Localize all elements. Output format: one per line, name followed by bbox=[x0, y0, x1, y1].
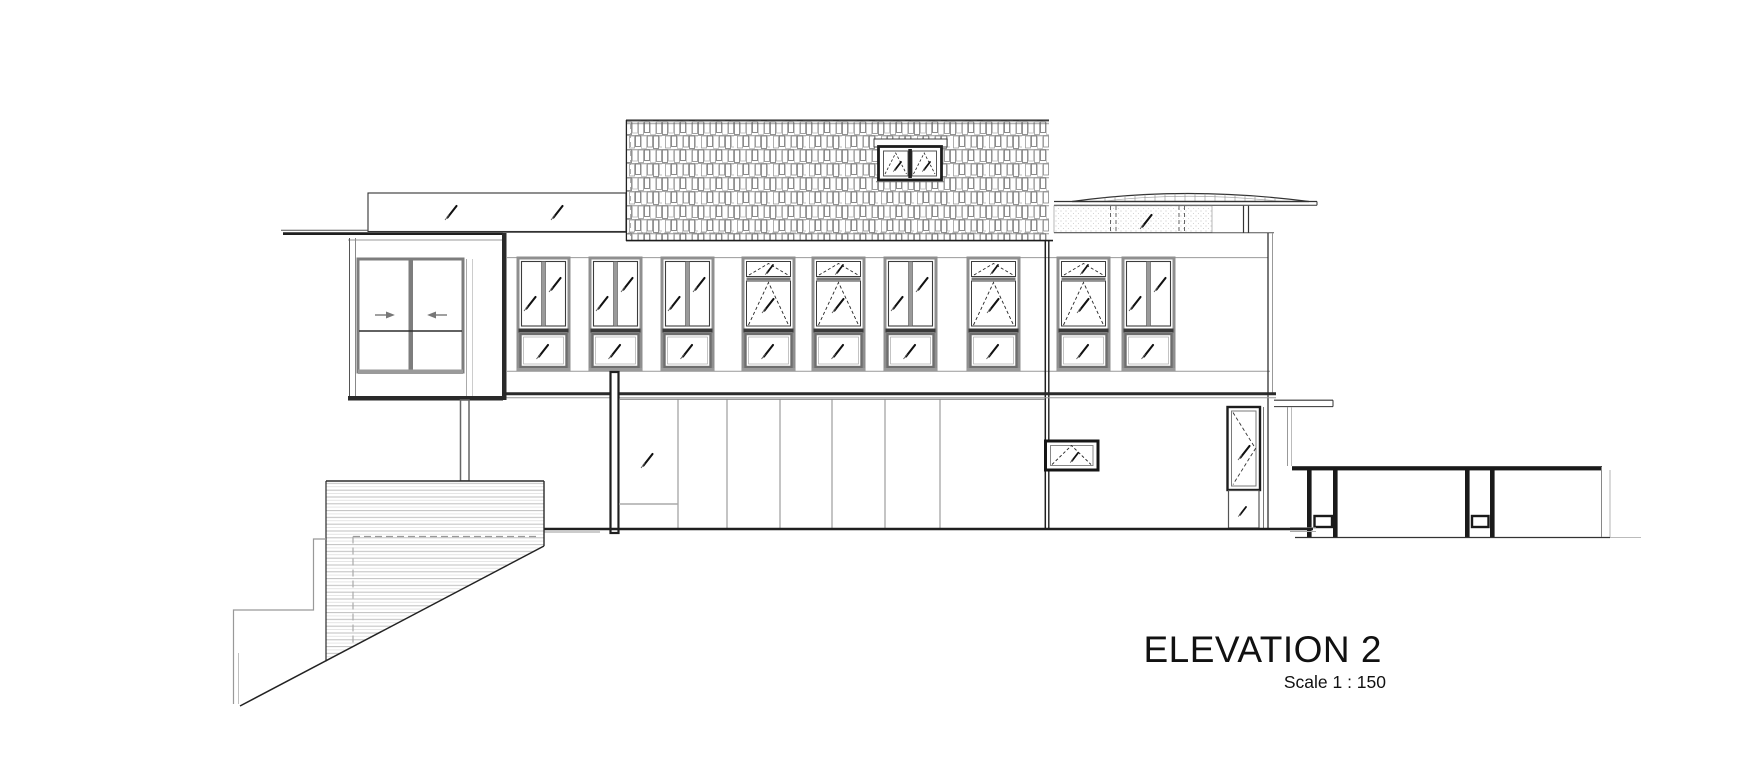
gate-latch-icon bbox=[1315, 516, 1333, 527]
drawing-title: ELEVATION 2 bbox=[1143, 629, 1382, 670]
roof-deck-band bbox=[1054, 206, 1274, 233]
upper-window-2-casement bbox=[589, 258, 642, 371]
ground-line bbox=[544, 529, 1313, 532]
upper-window-5-awning bbox=[812, 258, 865, 371]
gate-latch-icon bbox=[1472, 516, 1489, 527]
upper-window-row bbox=[517, 258, 1175, 371]
dormer-window bbox=[874, 139, 947, 182]
entry-door-porch bbox=[1228, 400, 1334, 528]
shingle-clad-volume bbox=[626, 120, 1053, 241]
title-block: ELEVATION 2 Scale 1 : 150 bbox=[1143, 629, 1386, 692]
upper-window-7-awning bbox=[967, 258, 1020, 371]
drawing-sheet: ELEVATION 2 Scale 1 : 150 bbox=[0, 0, 1754, 784]
fence-gate bbox=[1290, 466, 1641, 537]
upper-window-9-casement bbox=[1122, 258, 1175, 371]
small-awning-window bbox=[1046, 441, 1099, 470]
upper-window-4-awning bbox=[742, 258, 795, 371]
eyebrow-roof bbox=[1054, 186, 1317, 205]
upper-window-3-casement bbox=[661, 258, 714, 371]
retaining-wall-stairs bbox=[234, 481, 545, 706]
lower-wall-panels bbox=[611, 372, 1046, 533]
upper-window-1-casement bbox=[517, 258, 570, 371]
upper-window-6-casement bbox=[884, 258, 937, 371]
bay-sliding-window bbox=[348, 233, 507, 481]
upper-window-8-awning bbox=[1057, 258, 1110, 371]
drawing-scale: Scale 1 : 150 bbox=[1284, 672, 1386, 692]
left-roof-fascia bbox=[281, 193, 626, 240]
elevation-drawing: ELEVATION 2 Scale 1 : 150 bbox=[0, 0, 1754, 784]
